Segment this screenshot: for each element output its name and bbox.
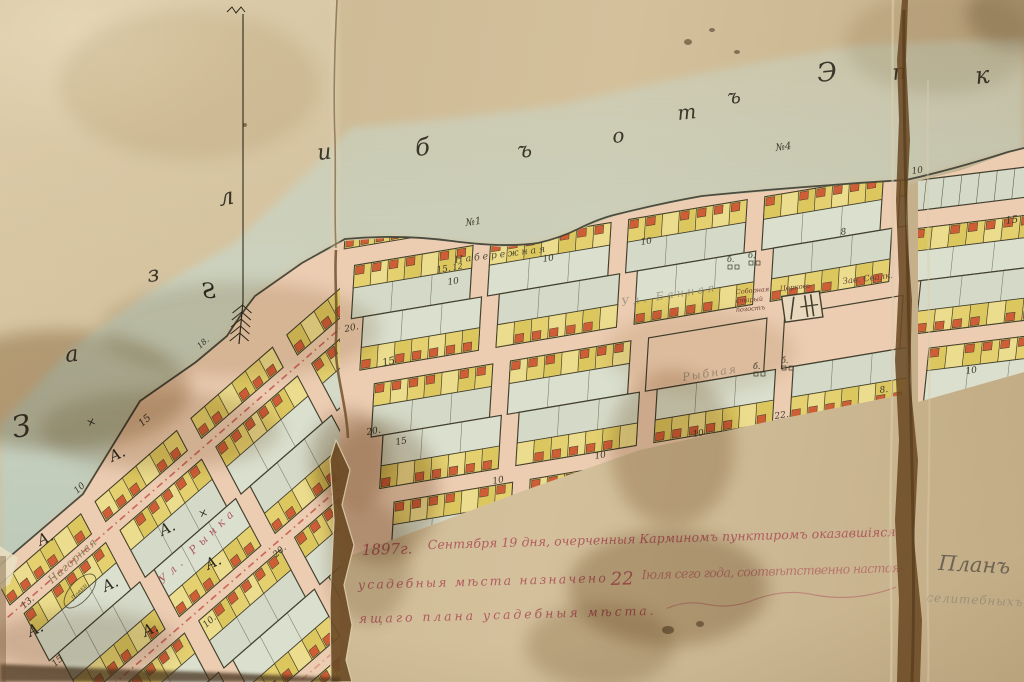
stain xyxy=(40,390,280,470)
map-number: 22. xyxy=(773,410,790,422)
svg-text:б.: б. xyxy=(748,251,755,260)
town-block xyxy=(946,449,1024,515)
map-number: 10 xyxy=(447,276,460,288)
river-letter: з xyxy=(146,262,161,288)
river-letter: ъ xyxy=(516,138,533,164)
map-number: 10 xyxy=(542,253,555,265)
church-symbol xyxy=(782,291,823,322)
map-number: №4 xyxy=(774,141,792,154)
map-number: 15 xyxy=(1005,214,1019,227)
ink-speck xyxy=(696,621,704,627)
svg-text:б.: б. xyxy=(727,255,734,264)
map-number: 10 xyxy=(640,236,653,248)
river-letter: ъ xyxy=(726,84,742,109)
town-block xyxy=(937,398,1019,464)
map-number: 12 xyxy=(452,261,463,271)
river-letter: о xyxy=(611,123,625,148)
stain xyxy=(310,410,390,510)
map-number: 8. xyxy=(879,385,889,396)
river-letter: Э xyxy=(816,57,839,89)
stain xyxy=(605,310,795,394)
ink-speck xyxy=(684,39,692,45)
historic-map-photo: ЦерковьСоборнаястарыйпогостъЗав. Свалк. … xyxy=(0,0,1024,682)
map-number: 10 xyxy=(594,450,607,462)
ink-speck xyxy=(734,50,740,54)
map-canvas: ЦерковьСоборнаястарыйпогостъЗав. Свалк. … xyxy=(0,0,1024,682)
ink-speck xyxy=(662,626,674,634)
map-number: 10 xyxy=(911,165,924,177)
plan-note-title: Планъ xyxy=(937,551,1011,579)
map-number: №1 xyxy=(464,216,482,229)
map-number: 10 xyxy=(965,365,978,377)
plan-note-sub: селитебныхъ xyxy=(926,590,1023,609)
stain xyxy=(60,10,320,160)
ink-speck xyxy=(709,28,715,32)
map-number: 10 xyxy=(492,475,505,487)
river-letter: т xyxy=(676,99,697,125)
plan-note: Планъ селитебныхъ xyxy=(926,550,1024,609)
river-letter: л xyxy=(216,182,236,212)
ink-speck xyxy=(243,123,247,127)
